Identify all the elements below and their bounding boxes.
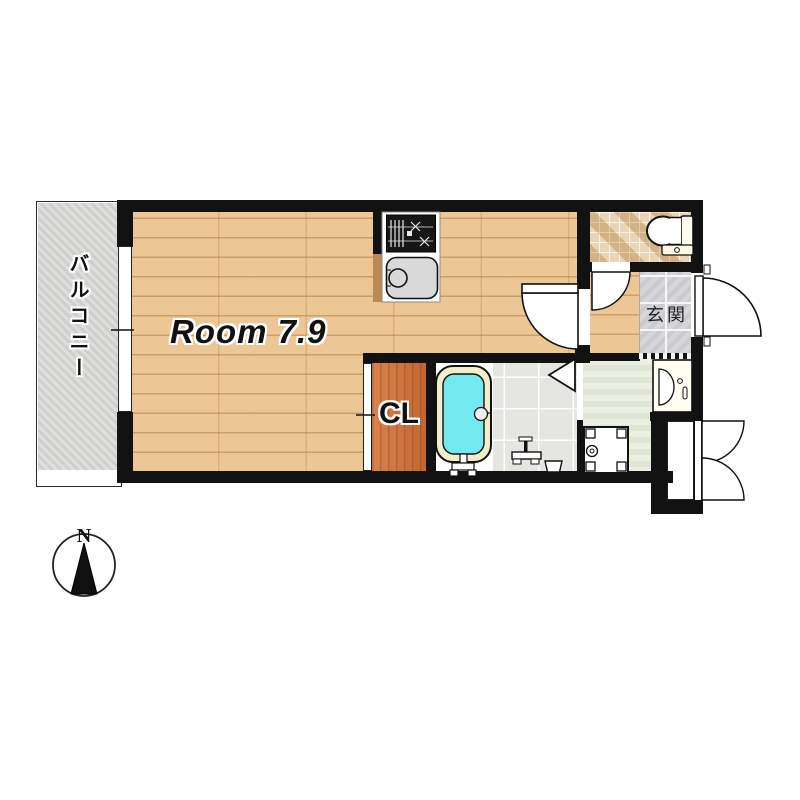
toilet-icon <box>647 216 693 255</box>
bath-door <box>549 359 575 391</box>
room-door-swing <box>522 284 578 349</box>
room-door-leaf <box>522 284 578 293</box>
front-door-leaf <box>695 276 703 336</box>
floorplan-canvas: バルコニー <box>0 0 800 800</box>
compass-north-label: N <box>77 525 92 547</box>
storage-double-doors <box>702 421 744 500</box>
stove-icon <box>387 215 436 252</box>
main-room-label: Room 7.9 <box>170 313 327 351</box>
sink-icon <box>386 258 438 299</box>
closet-label: CL <box>372 397 426 431</box>
shower-mixer-icon <box>512 437 541 464</box>
bucket-icon <box>545 461 562 472</box>
washbasin-icon <box>653 360 692 412</box>
entrance-label: 玄関 <box>646 301 688 327</box>
washer-pan-icon <box>584 427 628 473</box>
front-door-swing <box>691 265 761 346</box>
bathtub-icon <box>429 366 492 476</box>
compass: N <box>53 525 115 596</box>
toilet-door-swing <box>592 263 630 311</box>
